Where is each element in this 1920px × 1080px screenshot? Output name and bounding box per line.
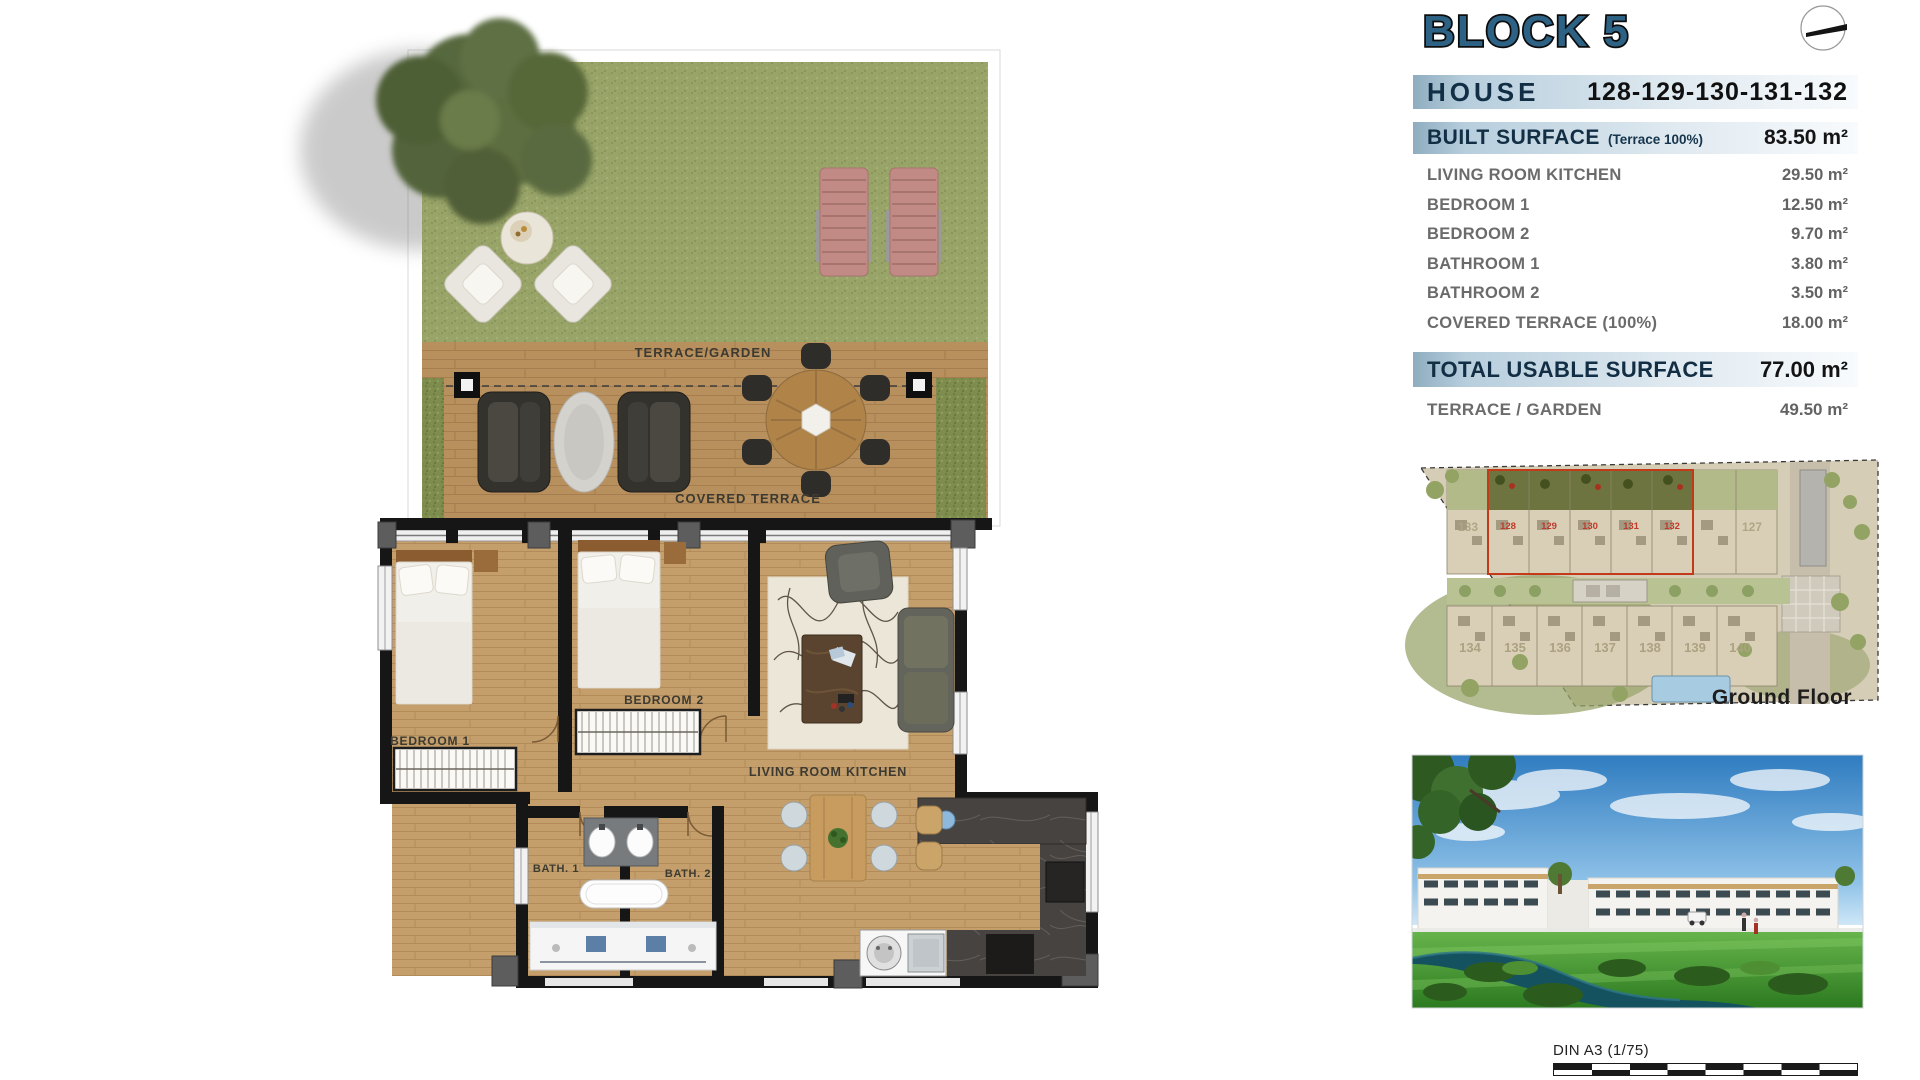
unit-number: 136: [1549, 640, 1571, 655]
sheet: TERRACE/GARDEN COVERED TERRACE BEDROOM 1…: [0, 0, 1920, 1080]
shower-area: [530, 922, 716, 970]
unit-number: 139: [1684, 640, 1706, 655]
living-coffee-table: [802, 635, 862, 723]
row-label: BATHROOM 1: [1427, 255, 1540, 274]
table-row: COVERED TERRACE (100%) 18.00 m²: [1413, 309, 1858, 339]
floor-plan: TERRACE/GARDEN COVERED TERRACE BEDROOM 1…: [300, 18, 1098, 988]
house-bar: HOUSE 128-129-130-131-132: [1413, 75, 1858, 109]
bedroom2-label: BEDROOM 2: [624, 693, 704, 707]
total-label: TOTAL USABLE SURFACE: [1427, 357, 1714, 383]
terrace-sofa-1: [478, 392, 550, 492]
living-label: LIVING ROOM KITCHEN: [749, 765, 907, 779]
terrace-post-left: [454, 372, 480, 398]
terrace-post-right: [906, 372, 932, 398]
built-surface-bar: BUILT SURFACE (Terrace 100%) 83.50 m²: [1413, 122, 1858, 154]
table-row: LIVING ROOM KITCHEN 29.50 m²: [1413, 161, 1858, 191]
terrace-garden-value: 49.50 m²: [1780, 400, 1848, 420]
unit-number: 138: [1639, 640, 1661, 655]
row-value: 3.50 m²: [1791, 284, 1848, 303]
unit-number: 140: [1729, 640, 1751, 655]
unit-number: 127: [1742, 520, 1762, 534]
unit-number: 128: [1500, 521, 1516, 532]
total-surface-bar: TOTAL USABLE SURFACE 77.00 m²: [1413, 352, 1858, 387]
wardrobe-2: [576, 710, 700, 754]
bathtub: [580, 880, 668, 908]
built-surface-note: (Terrace 100%): [1608, 132, 1703, 147]
table-row: BEDROOM 2 9.70 m²: [1413, 220, 1858, 250]
block-title: BLOCK 5: [1423, 7, 1630, 56]
row-value: 12.50 m²: [1782, 196, 1848, 215]
wardrobe-1: [394, 748, 516, 790]
bedroom1-label: BEDROOM 1: [390, 734, 470, 748]
site-units-top: [1447, 470, 1777, 574]
terrace-sofa-2: [618, 392, 690, 492]
unit-number: 130: [1582, 521, 1598, 532]
bath-vanity: [584, 818, 658, 866]
site-plan-caption: Ground Floor: [1600, 686, 1852, 710]
unit-number: 135: [1504, 640, 1526, 655]
unit-number: 137: [1594, 640, 1616, 655]
scale-bar: [1553, 1063, 1858, 1076]
unit-number: 133: [1458, 520, 1478, 534]
hedge-right: [936, 378, 986, 520]
covered-terrace-label: COVERED TERRACE: [675, 491, 821, 506]
table-row: BATHROOM 2 3.50 m²: [1413, 279, 1858, 309]
unit-number: 129: [1541, 521, 1557, 532]
bath1-label: BATH. 1: [533, 863, 579, 875]
sun-lounger-1: [816, 168, 872, 276]
table-row: BEDROOM 1 12.50 m²: [1413, 191, 1858, 221]
sun-lounger-2: [886, 168, 942, 276]
unit-number: 132: [1664, 521, 1680, 532]
living-sofa: [898, 608, 954, 732]
scale-bar-bottom: [1554, 1070, 1857, 1076]
sliding-doors-top: [392, 528, 953, 543]
row-value: 9.70 m²: [1791, 225, 1848, 244]
row-label: BEDROOM 1: [1427, 196, 1530, 215]
row-value: 3.80 m²: [1791, 255, 1848, 274]
garden-side-table: [501, 212, 553, 264]
house-numbers: 128-129-130-131-132: [1587, 78, 1848, 107]
hedge-left: [422, 378, 444, 520]
living-armchair: [824, 540, 894, 604]
site-plan: 133 128 129 130 131 132 127 134 135 136 …: [1405, 460, 1878, 715]
row-label: LIVING ROOM KITCHEN: [1427, 166, 1622, 185]
surface-table: LIVING ROOM KITCHEN 29.50 m² BEDROOM 1 1…: [1413, 161, 1858, 338]
row-label: BATHROOM 2: [1427, 284, 1540, 303]
unit-number: 134: [1459, 640, 1481, 655]
site-road: [1447, 578, 1790, 604]
built-surface-value: 83.50 m²: [1764, 126, 1848, 150]
row-value: 18.00 m²: [1782, 314, 1848, 333]
terrace-garden-label: TERRACE/GARDEN: [635, 345, 772, 360]
scale-label: DIN A3 (1/75): [1553, 1042, 1649, 1059]
unit-number: 131: [1623, 521, 1640, 532]
built-surface-label: BUILT SURFACE: [1427, 126, 1600, 150]
house-label: HOUSE: [1427, 77, 1539, 108]
terrace-garden-row: TERRACE / GARDEN 49.50 m²: [1413, 395, 1858, 425]
row-label: COVERED TERRACE (100%): [1427, 314, 1657, 333]
row-label: BEDROOM 2: [1427, 225, 1530, 244]
terrace-garden-label: TERRACE / GARDEN: [1427, 400, 1602, 420]
table-row: BATHROOM 1 3.80 m²: [1413, 250, 1858, 280]
building-photo: [1395, 742, 1872, 1008]
bath2-label: BATH. 2: [665, 868, 711, 880]
terrace-coffee-table: [554, 392, 614, 492]
compass-icon: [1801, 6, 1847, 50]
row-value: 29.50 m²: [1782, 166, 1848, 185]
total-value: 77.00 m²: [1760, 357, 1848, 383]
